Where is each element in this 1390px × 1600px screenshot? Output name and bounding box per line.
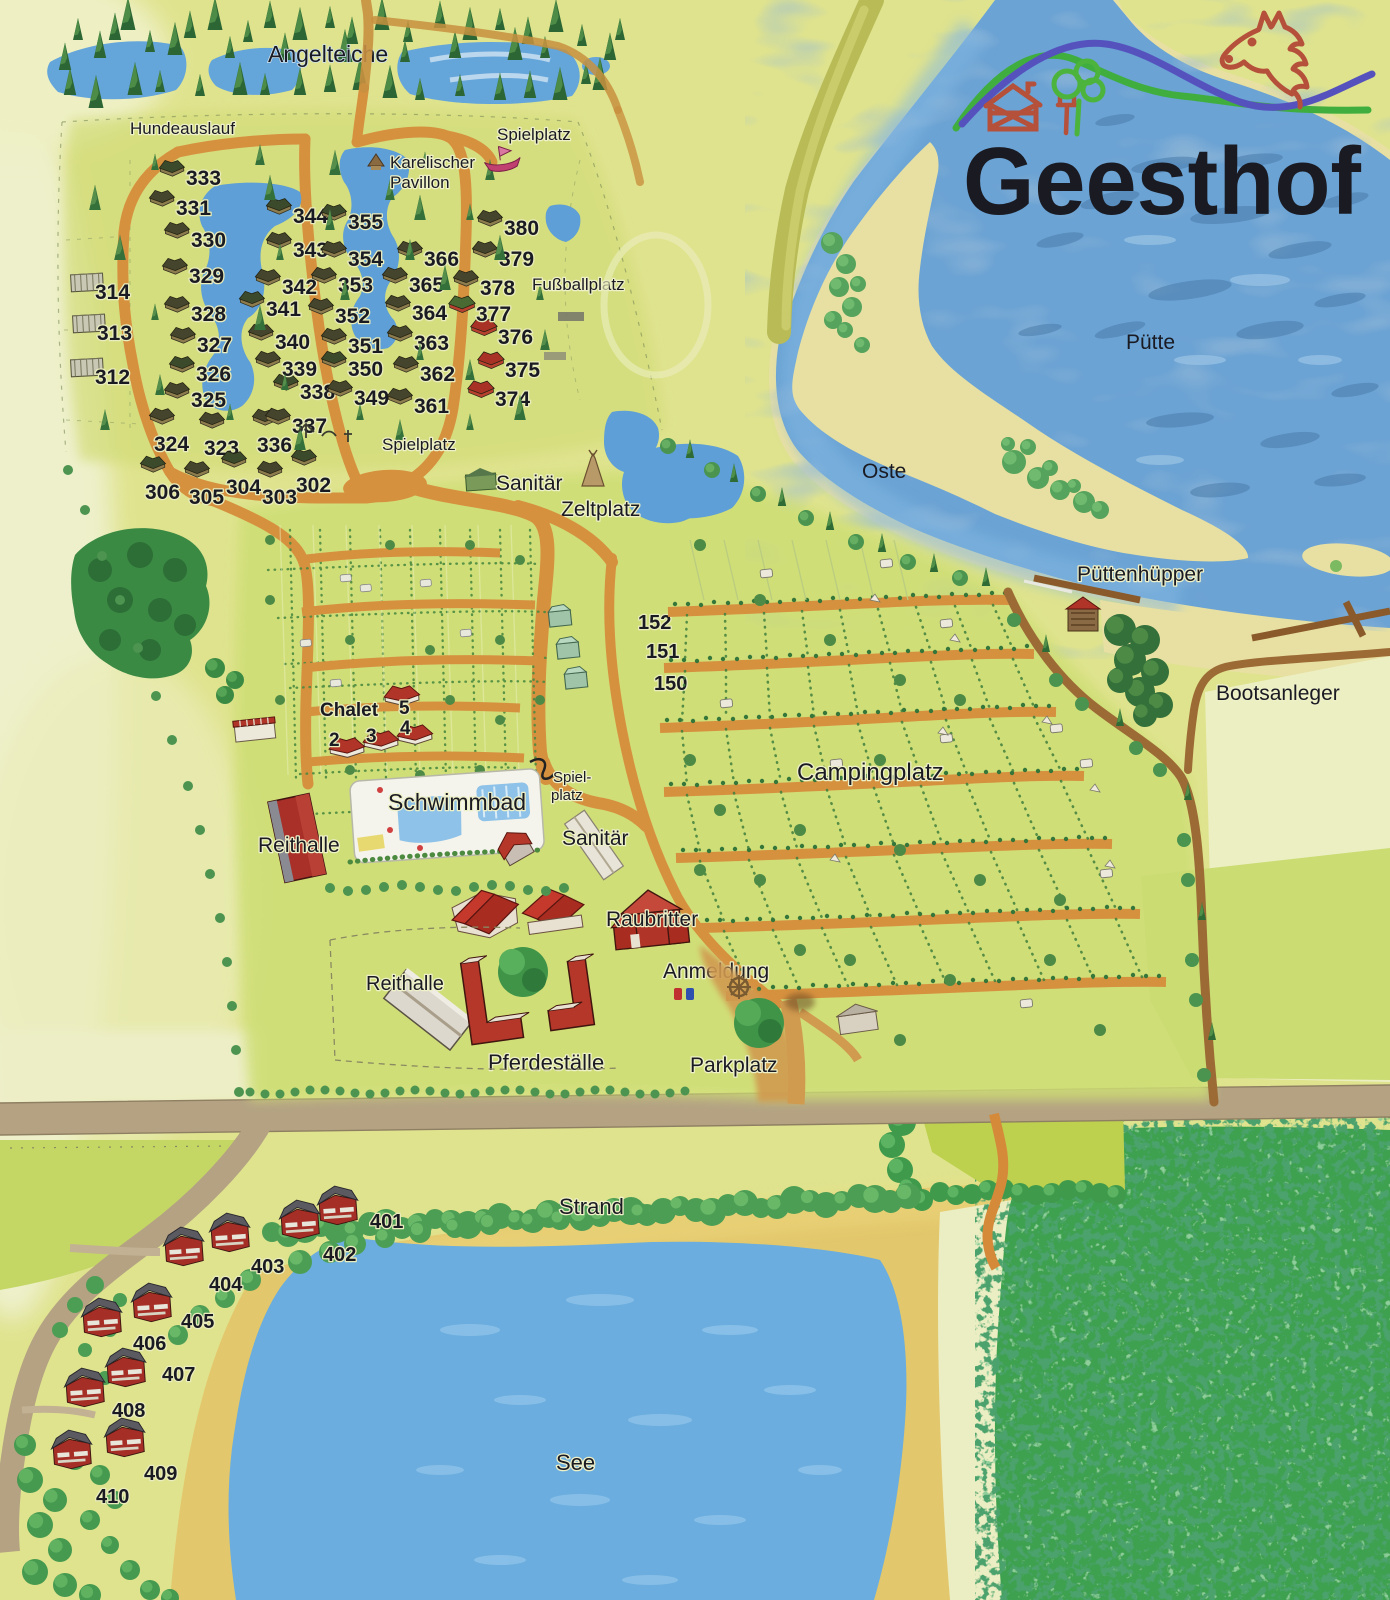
svg-text:354: 354 — [348, 248, 383, 271]
svg-text:Campingplatz: Campingplatz — [797, 759, 944, 786]
svg-text:Chalet: Chalet — [320, 700, 379, 721]
svg-text:Spielplatz: Spielplatz — [497, 125, 571, 144]
svg-text:150: 150 — [654, 673, 687, 695]
svg-text:365: 365 — [409, 274, 444, 297]
svg-text:Püttenhüpper: Püttenhüpper — [1077, 563, 1203, 586]
svg-text:Geesthof: Geesthof — [963, 128, 1362, 235]
svg-text:Reithalle: Reithalle — [258, 834, 340, 857]
svg-text:331: 331 — [176, 197, 211, 220]
svg-text:404: 404 — [209, 1274, 243, 1296]
svg-text:Pferdeställe: Pferdeställe — [488, 1050, 604, 1075]
svg-text:5: 5 — [399, 698, 410, 719]
svg-text:375: 375 — [505, 359, 540, 382]
svg-text:403: 403 — [251, 1256, 284, 1278]
svg-text:326: 326 — [196, 363, 231, 386]
svg-text:304: 304 — [226, 476, 261, 499]
svg-text:364: 364 — [412, 302, 447, 325]
svg-text:Raubritter: Raubritter — [606, 908, 698, 931]
svg-text:platz: platz — [551, 787, 583, 804]
svg-text:355: 355 — [348, 211, 383, 234]
svg-text:408: 408 — [112, 1400, 145, 1422]
svg-text:402: 402 — [323, 1244, 356, 1266]
svg-text:Spiel-: Spiel- — [553, 769, 591, 786]
svg-text:Spielplatz: Spielplatz — [382, 435, 456, 454]
svg-text:See: See — [556, 1450, 595, 1475]
svg-text:3: 3 — [366, 726, 377, 747]
svg-text:302: 302 — [296, 474, 331, 497]
svg-text:Zeltplatz: Zeltplatz — [561, 498, 640, 521]
svg-text:2: 2 — [329, 730, 340, 751]
svg-text:Sanitär: Sanitär — [496, 472, 563, 495]
svg-text:341: 341 — [266, 298, 301, 321]
svg-text:336: 336 — [257, 434, 292, 457]
svg-text:330: 330 — [191, 229, 226, 252]
svg-text:380: 380 — [504, 217, 539, 240]
svg-text:352: 352 — [335, 305, 370, 328]
svg-text:Karelischer: Karelischer — [390, 153, 475, 172]
svg-text:344: 344 — [293, 205, 328, 228]
svg-text:Pavillon: Pavillon — [390, 173, 450, 192]
svg-text:Reithalle: Reithalle — [366, 973, 444, 995]
svg-text:306: 306 — [145, 481, 180, 504]
svg-text:325: 325 — [191, 389, 226, 412]
svg-text:366: 366 — [424, 248, 459, 271]
svg-text:312: 312 — [95, 366, 130, 389]
svg-text:410: 410 — [96, 1486, 129, 1508]
svg-text:349: 349 — [354, 387, 389, 410]
svg-text:Pütte: Pütte — [1126, 331, 1175, 354]
svg-text:342: 342 — [282, 276, 317, 299]
svg-text:Hundeauslauf: Hundeauslauf — [130, 119, 235, 138]
svg-text:374: 374 — [495, 388, 530, 411]
svg-text:4: 4 — [400, 718, 411, 739]
svg-text:350: 350 — [348, 358, 383, 381]
svg-text:328: 328 — [191, 303, 226, 326]
svg-text:407: 407 — [162, 1364, 195, 1386]
svg-text:340: 340 — [275, 331, 310, 354]
svg-text:313: 313 — [97, 322, 132, 345]
svg-text:377: 377 — [476, 303, 511, 326]
svg-text:376: 376 — [498, 326, 533, 349]
svg-text:Sanitär: Sanitär — [562, 827, 629, 850]
svg-text:401: 401 — [370, 1211, 403, 1233]
svg-text:329: 329 — [189, 265, 224, 288]
svg-text:339: 339 — [282, 358, 317, 381]
svg-text:Strand: Strand — [559, 1194, 624, 1219]
svg-text:151: 151 — [646, 641, 679, 663]
svg-text:362: 362 — [420, 363, 455, 386]
svg-text:Bootsanleger: Bootsanleger — [1216, 682, 1340, 705]
svg-text:Parkplatz: Parkplatz — [690, 1054, 778, 1077]
svg-text:Schwimmbad: Schwimmbad — [388, 789, 526, 815]
svg-text:314: 314 — [95, 281, 130, 304]
svg-text:351: 351 — [348, 335, 383, 358]
svg-text:405: 405 — [181, 1311, 214, 1333]
svg-text:152: 152 — [638, 612, 671, 634]
svg-text:333: 333 — [186, 167, 221, 190]
svg-text:Oste: Oste — [862, 460, 906, 483]
svg-text:303: 303 — [262, 486, 297, 509]
svg-text:378: 378 — [480, 277, 515, 300]
svg-text:324: 324 — [154, 433, 189, 456]
svg-text:327: 327 — [197, 334, 232, 357]
svg-text:409: 409 — [144, 1463, 177, 1485]
svg-text:361: 361 — [414, 395, 449, 418]
svg-text:305: 305 — [189, 486, 224, 509]
